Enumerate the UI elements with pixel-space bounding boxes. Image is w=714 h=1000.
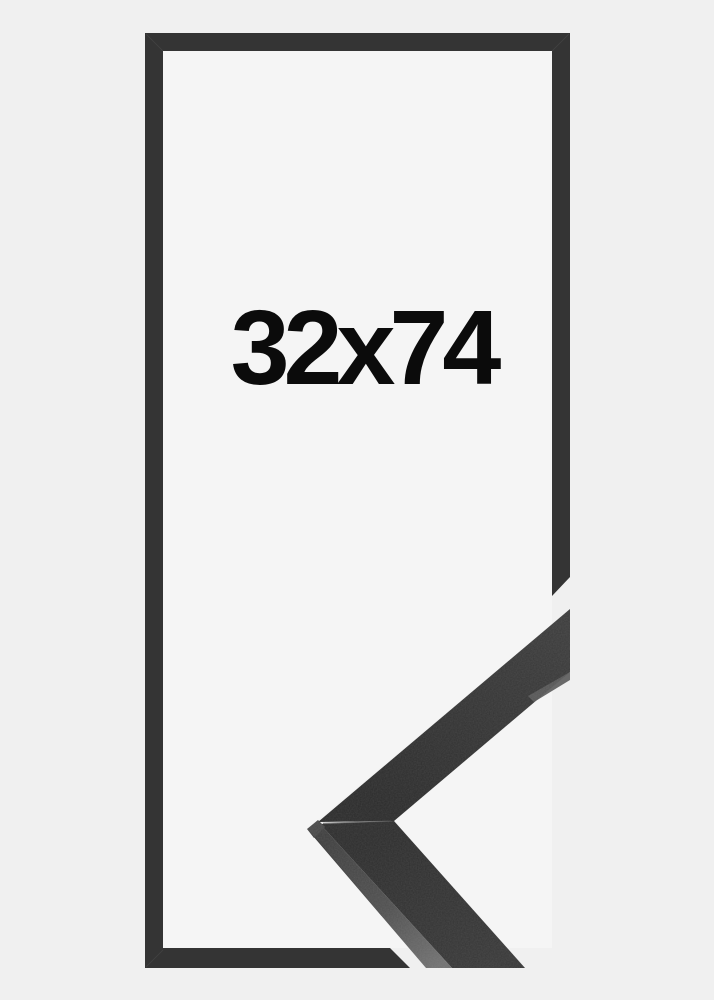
size-label: 32x74	[231, 289, 502, 407]
frame-bottom-bar	[145, 948, 410, 968]
product-image: 32x74	[0, 0, 714, 1000]
frame-right-bar	[552, 33, 570, 596]
frame-mockup-svg: 32x74	[0, 0, 714, 1000]
frame-top-bar	[145, 33, 570, 51]
frame-left-bar	[145, 33, 163, 968]
